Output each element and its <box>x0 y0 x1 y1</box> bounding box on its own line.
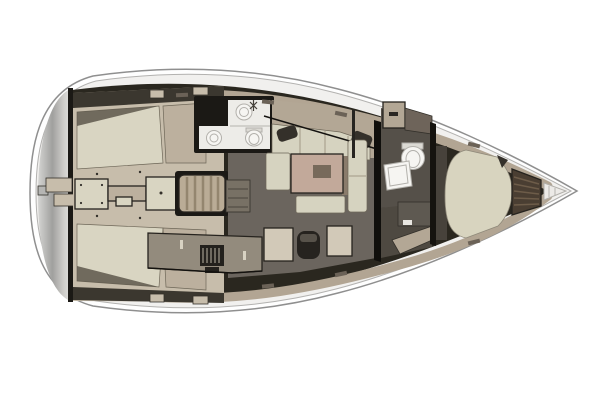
counter-handle <box>243 251 246 260</box>
pedestal-bolt <box>160 192 163 195</box>
nav-locker <box>327 226 352 256</box>
winch-pad <box>150 294 164 302</box>
stern-step <box>46 178 72 192</box>
locker-slat <box>514 204 539 205</box>
cabinet-handle <box>389 112 398 116</box>
companionway <box>175 171 229 216</box>
galley-zone <box>148 233 262 273</box>
table-inlay <box>313 165 331 178</box>
table-bolt <box>101 202 103 204</box>
yacht-floorplan-image <box>0 0 600 400</box>
yacht-floorplan-page <box>0 0 600 400</box>
cockpit-drain <box>139 171 141 173</box>
nav-seat-back <box>300 234 317 242</box>
nav-station-zone <box>264 226 352 261</box>
toilet-bowl <box>246 130 263 146</box>
table-bolt <box>80 184 82 186</box>
compression-post <box>352 110 355 158</box>
deck-fitting <box>176 93 188 97</box>
shower-pan <box>384 161 412 190</box>
aft-head-zone <box>194 96 274 153</box>
forward-bulkhead <box>430 122 436 246</box>
table-bolt <box>80 202 82 204</box>
locker-slat <box>514 198 539 199</box>
cockpit-table-foot <box>116 197 132 206</box>
dinette-cushion-bottom <box>296 196 345 213</box>
winch-pad <box>150 90 164 98</box>
counter-handle <box>180 240 183 249</box>
dinette-cushion-left <box>266 153 290 190</box>
cockpit-drain <box>139 217 141 219</box>
sink-basin <box>236 104 252 120</box>
cockpit-table-leaf <box>75 179 108 209</box>
table-bolt <box>101 184 103 186</box>
main-bulkhead <box>374 120 381 262</box>
stove <box>200 245 224 266</box>
shelf-handle <box>403 220 412 225</box>
shower-drain-basin <box>207 131 222 146</box>
winch-pad <box>193 87 208 95</box>
cockpit-drain <box>96 215 98 217</box>
winch-pad <box>193 296 208 304</box>
cockpit-drain <box>96 173 98 175</box>
chart-table <box>264 228 293 261</box>
